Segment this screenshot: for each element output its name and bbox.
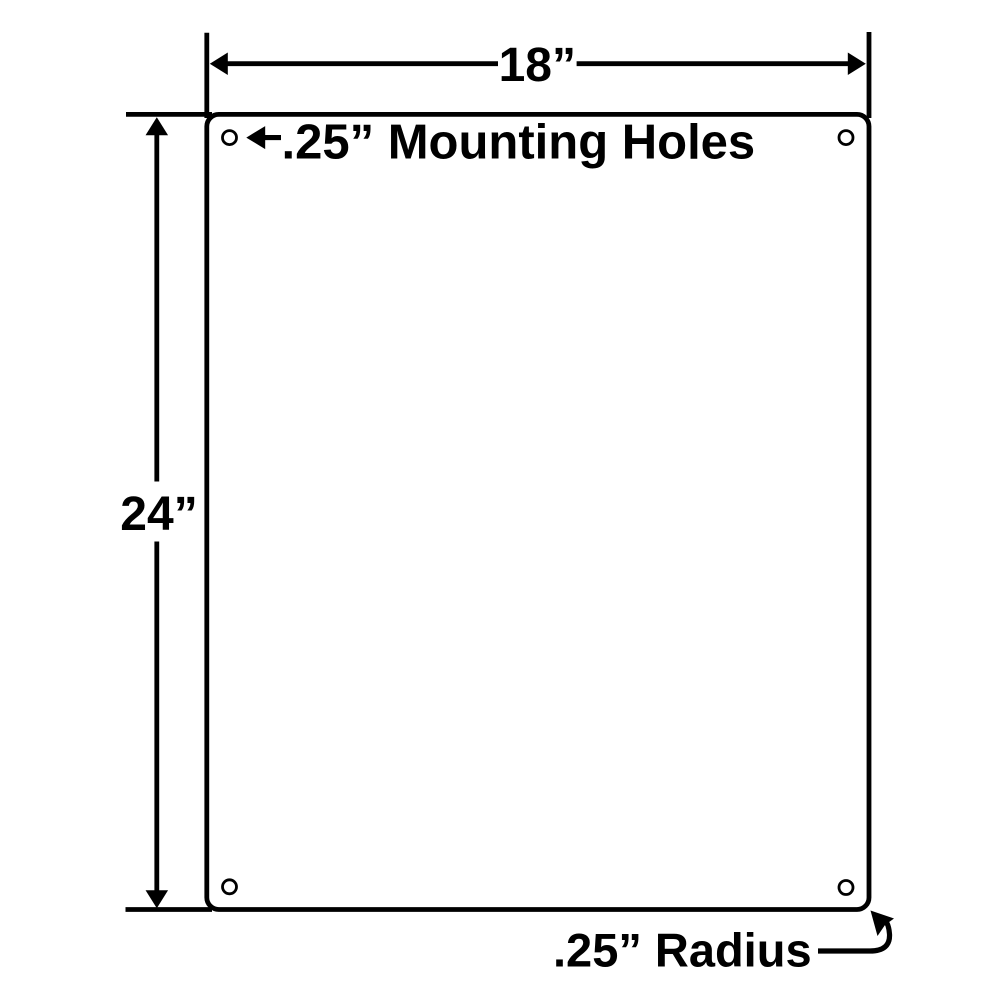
- svg-text:24”: 24”: [120, 488, 197, 541]
- svg-text:18”: 18”: [499, 39, 576, 92]
- svg-text:.25” Mounting Holes: .25” Mounting Holes: [282, 116, 756, 170]
- svg-text:.25” Radius: .25” Radius: [553, 923, 812, 976]
